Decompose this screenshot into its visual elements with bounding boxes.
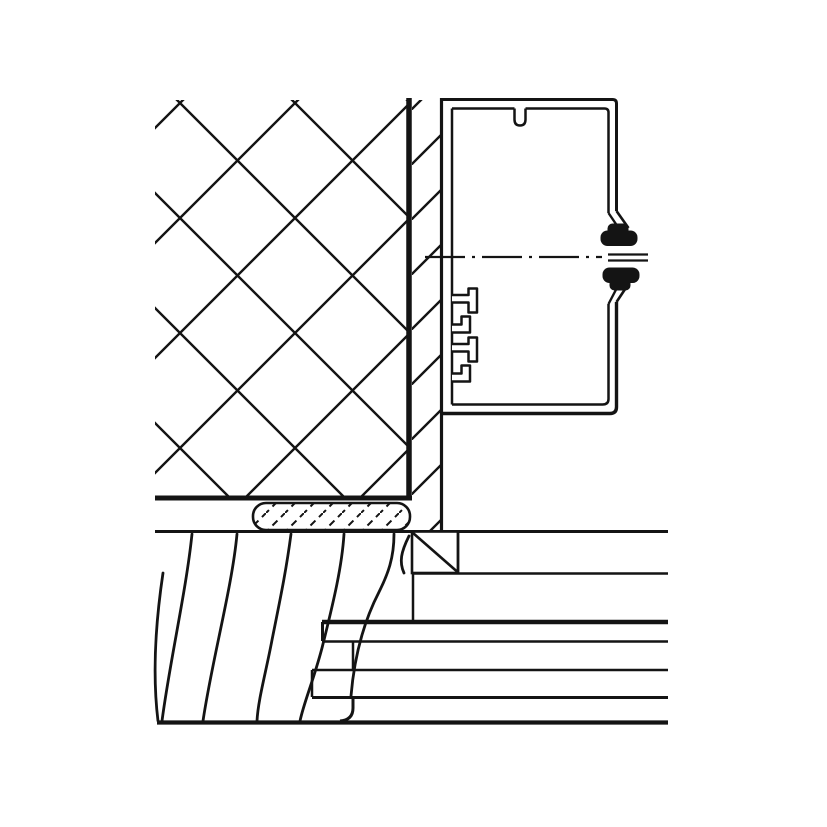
top-fixing-slot	[515, 109, 526, 126]
masonry-wall-hatch	[155, 100, 407, 496]
divider-rail-upper	[452, 289, 477, 333]
divider-rail-lower	[452, 338, 477, 382]
plaster-layer-hatch	[412, 100, 441, 531]
sealant-joint	[253, 503, 410, 530]
cover-clip-upper	[601, 224, 638, 247]
symmetry-centerline	[425, 255, 648, 261]
drawing-canvas	[0, 0, 827, 827]
detail-drawing	[0, 0, 827, 827]
cover-clip-lower	[603, 268, 640, 291]
batten-block	[412, 532, 458, 574]
timber-sill-grain	[155, 534, 409, 721]
